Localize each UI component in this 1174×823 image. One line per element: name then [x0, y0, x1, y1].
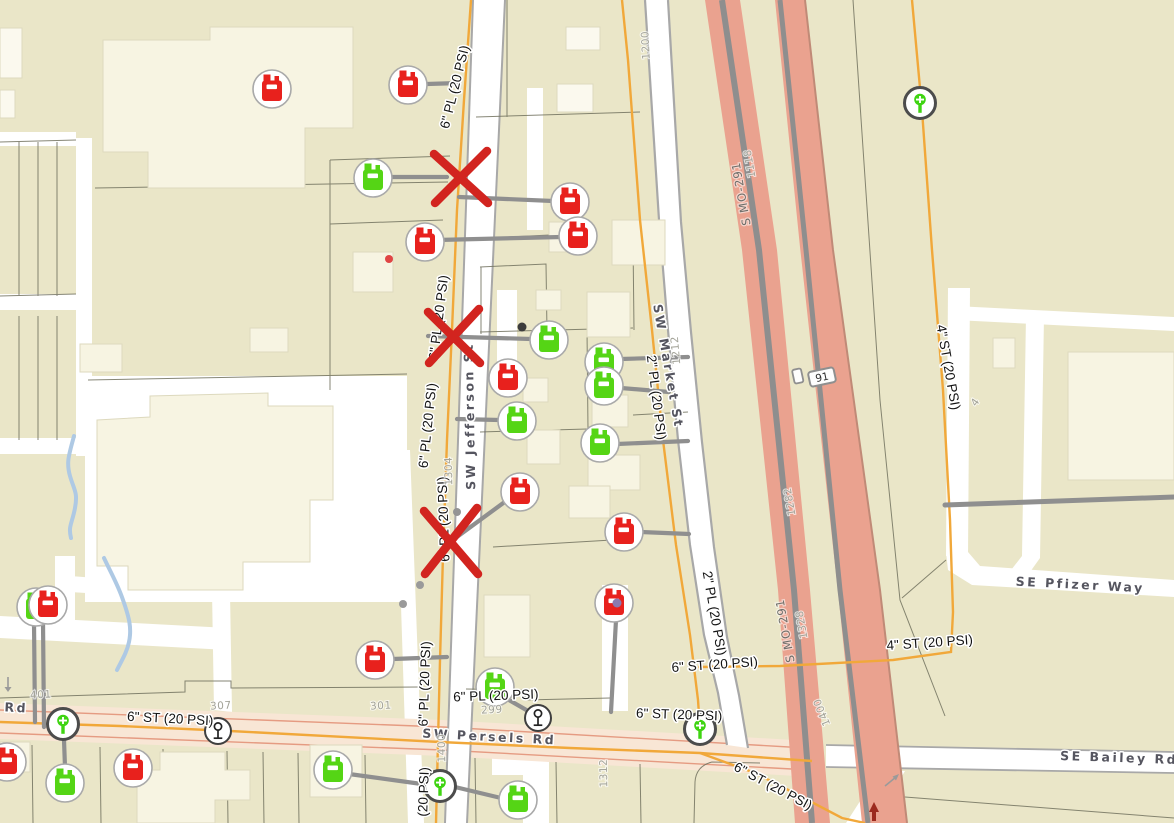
gas-meter-green-icon[interactable] [314, 751, 352, 789]
gas-meter-green-icon[interactable] [581, 424, 619, 462]
map-dot [416, 581, 424, 589]
gas-meter-red-icon[interactable] [489, 359, 527, 397]
map-canvas[interactable]: 91 SW Jefferson StSW Market StSW Persels… [0, 0, 1174, 823]
gas-meter-red-icon[interactable] [114, 749, 152, 787]
map-dot [518, 323, 527, 332]
address-number-label: 401 [30, 688, 52, 701]
map-dot [399, 600, 407, 608]
gas-valve-icon[interactable] [905, 88, 936, 119]
address-number-label: 307 [210, 699, 232, 712]
address-number-label: 1400 [436, 734, 448, 763]
gas-meter-red-icon[interactable] [559, 217, 597, 255]
address-number-label: 1304 [443, 457, 455, 486]
address-number-label: 1312 [598, 759, 610, 788]
gas-meter-green-icon[interactable] [354, 159, 392, 197]
gas-meter-red-icon[interactable] [605, 513, 643, 551]
pipe-annotation-label: 6" ST (20 PSI) [636, 706, 723, 724]
address-number-label: 1212 [669, 335, 683, 365]
gas-meter-red-icon[interactable] [389, 66, 427, 104]
regulator-icon[interactable] [525, 705, 551, 731]
gas-meter-red-icon[interactable] [29, 586, 67, 624]
address-number-label: 299 [481, 703, 503, 716]
gas-meter-red-icon[interactable] [356, 641, 394, 679]
pipe-annotation-label: 6" PL (20 PSI) [453, 687, 539, 705]
gas-meter-red-icon[interactable] [253, 70, 291, 108]
gas-meter-red-icon[interactable] [406, 223, 444, 261]
pipe-annotation-label: (20 PSI) [415, 767, 432, 817]
gas-meter-green-icon[interactable] [46, 764, 84, 802]
gas-valve-icon[interactable] [48, 709, 79, 740]
pipe-annotation-label: 6" PL (20 PSI) [416, 641, 434, 727]
gas-meter-green-icon[interactable] [585, 367, 623, 405]
street-name-label: Rd [4, 699, 28, 715]
map-dot [385, 255, 393, 263]
gas-meter-red-icon[interactable] [551, 183, 589, 221]
map-dot [613, 599, 622, 608]
address-number-label: 301 [370, 699, 392, 712]
map-dot [453, 508, 461, 516]
address-number-label: 1200 [639, 30, 652, 59]
gas-meter-green-icon[interactable] [499, 781, 537, 819]
gas-meter-green-icon[interactable] [498, 402, 536, 440]
gas-meter-red-icon[interactable] [501, 473, 539, 511]
gas-meter-green-icon[interactable] [530, 321, 568, 359]
